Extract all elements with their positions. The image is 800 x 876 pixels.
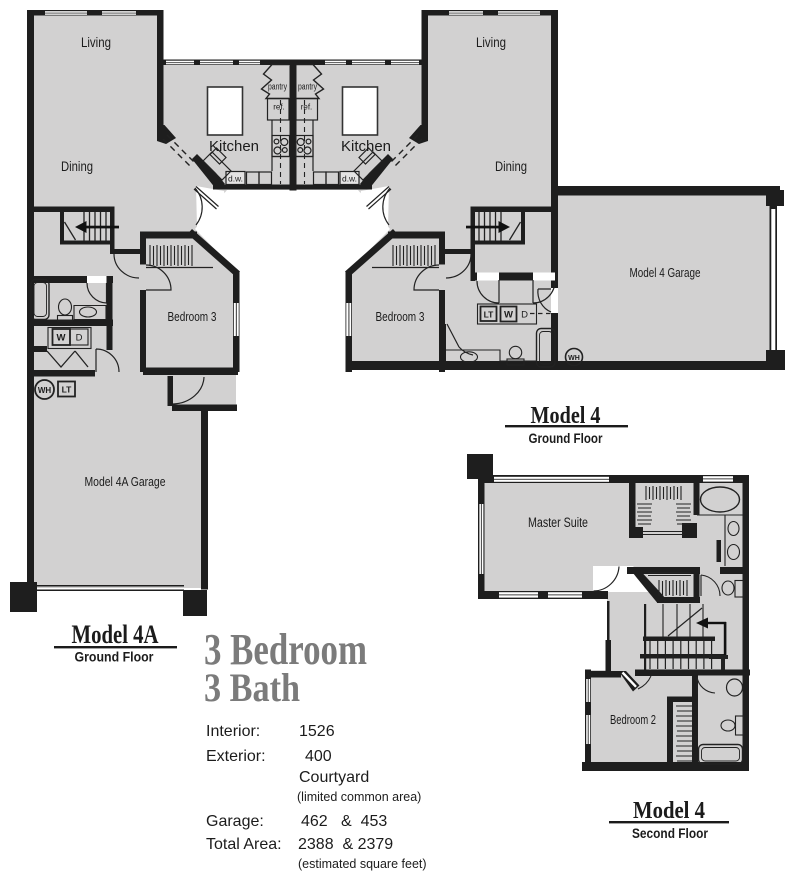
- svg-text:ref.: ref.: [301, 103, 313, 112]
- svg-text:(limited common area): (limited common area): [297, 790, 421, 804]
- svg-text:pantry: pantry: [298, 82, 317, 92]
- svg-text:LT: LT: [62, 385, 73, 395]
- svg-text:Kitchen: Kitchen: [209, 138, 259, 155]
- svg-text:Second Floor: Second Floor: [632, 826, 709, 841]
- svg-text:Model 4A Garage: Model 4A Garage: [85, 474, 166, 489]
- svg-text:Dining: Dining: [495, 159, 527, 174]
- svg-text:Ground Floor: Ground Floor: [75, 649, 154, 665]
- svg-text:ref.: ref.: [273, 103, 285, 112]
- svg-text:Ground Floor: Ground Floor: [529, 431, 604, 446]
- svg-text:Garage:: Garage:: [206, 813, 264, 830]
- svg-text:Model 4A: Model 4A: [72, 620, 159, 649]
- svg-text:Exterior:: Exterior:: [206, 748, 266, 765]
- svg-text:2388 & 2379: 2388 & 2379: [298, 836, 393, 853]
- svg-text:462 & 453: 462 & 453: [301, 813, 387, 830]
- svg-text:W: W: [504, 310, 513, 321]
- svg-text:Master Suite: Master Suite: [528, 515, 588, 530]
- svg-text:d.w.: d.w.: [228, 175, 243, 184]
- svg-text:Living: Living: [81, 35, 111, 50]
- svg-text:d.w.: d.w.: [342, 175, 357, 184]
- svg-text:D: D: [521, 310, 528, 321]
- svg-text:Living: Living: [476, 35, 506, 50]
- svg-text:Dining: Dining: [61, 159, 93, 174]
- svg-text:LT: LT: [484, 310, 495, 320]
- svg-text:Bedroom 2: Bedroom 2: [610, 712, 656, 727]
- svg-text:Model 4: Model 4: [633, 798, 705, 824]
- svg-text:Total Area:: Total Area:: [206, 836, 282, 853]
- svg-text:Courtyard: Courtyard: [299, 769, 369, 786]
- svg-text:400: 400: [305, 748, 332, 765]
- svg-text:D: D: [76, 333, 83, 344]
- svg-text:1526: 1526: [299, 723, 335, 740]
- svg-text:pantry: pantry: [268, 82, 287, 92]
- svg-text:WH: WH: [568, 355, 580, 362]
- svg-text:W: W: [57, 333, 66, 344]
- svg-text:Interior:: Interior:: [206, 723, 260, 740]
- svg-text:Kitchen: Kitchen: [341, 138, 391, 155]
- svg-text:3 Bath: 3 Bath: [204, 665, 300, 710]
- svg-text:(estimated square feet): (estimated square feet): [298, 857, 427, 871]
- svg-text:WH: WH: [38, 386, 52, 395]
- svg-text:Bedroom 3: Bedroom 3: [168, 309, 217, 324]
- svg-text:Bedroom 3: Bedroom 3: [376, 309, 425, 324]
- svg-text:Model 4 Garage: Model 4 Garage: [630, 265, 701, 280]
